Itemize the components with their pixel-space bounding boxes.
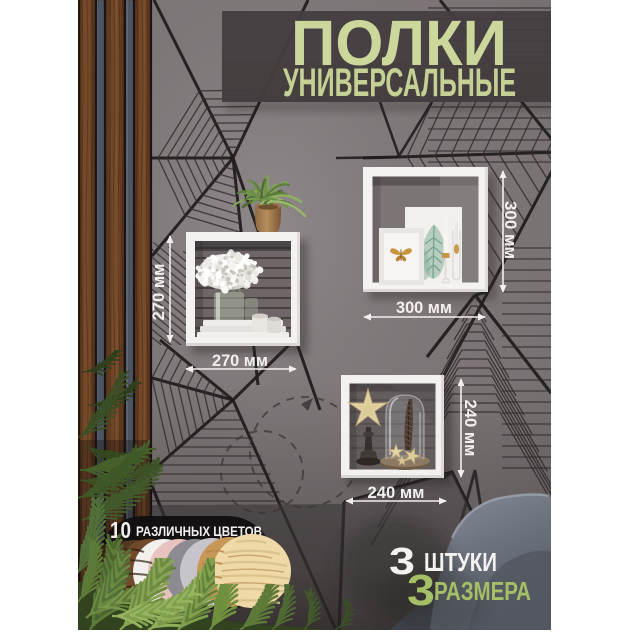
svg-text:3: 3 <box>407 566 435 615</box>
svg-text:300 мм: 300 мм <box>501 201 520 259</box>
svg-text:240 мм: 240 мм <box>461 400 480 457</box>
svg-text:300 мм: 300 мм <box>396 298 452 317</box>
svg-text:РАЗМЕРА: РАЗМЕРА <box>434 576 531 606</box>
svg-text:240 мм: 240 мм <box>368 483 425 502</box>
svg-text:270 мм: 270 мм <box>212 351 268 370</box>
svg-text:270 мм: 270 мм <box>149 264 168 321</box>
svg-text:УНИВЕРСАЛЬНЫЕ: УНИВЕРСАЛЬНЫЕ <box>283 61 516 105</box>
